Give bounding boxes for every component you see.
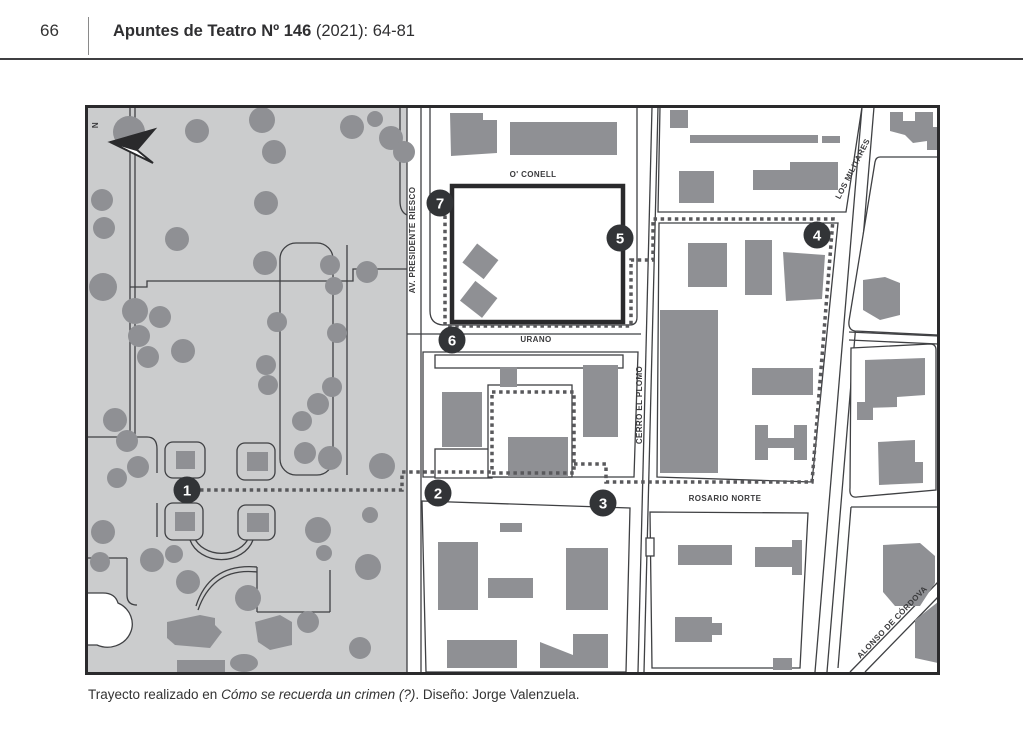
block-northeast-lower bbox=[657, 223, 838, 482]
building bbox=[690, 135, 818, 143]
marker-number: 4 bbox=[813, 228, 822, 245]
tree-icon bbox=[327, 323, 347, 343]
tree-icon bbox=[235, 585, 261, 611]
park-pond bbox=[230, 654, 258, 672]
tree-icon bbox=[89, 273, 117, 301]
marker-number: 2 bbox=[434, 486, 442, 503]
planter-core bbox=[247, 452, 268, 471]
tree-icon bbox=[307, 393, 329, 415]
park-area: N bbox=[87, 107, 415, 673]
tree-icon bbox=[93, 217, 115, 239]
block-northeast-upper bbox=[658, 107, 862, 212]
building bbox=[442, 392, 482, 447]
tree-icon bbox=[165, 227, 189, 251]
street-label-oconell: O' CONELL bbox=[510, 170, 557, 179]
route-marker-1: 1 bbox=[174, 477, 201, 504]
street-label-cerro-el-plomo: CERRO EL PLOMO bbox=[635, 366, 644, 444]
building bbox=[438, 542, 478, 610]
street-label-presidente-riesco: AV. PRESIDENTE RIESCO bbox=[408, 187, 417, 294]
tree-icon bbox=[185, 119, 209, 143]
tree-icon bbox=[297, 611, 319, 633]
tree-icon bbox=[165, 545, 183, 563]
tree-icon bbox=[91, 189, 113, 211]
building bbox=[679, 171, 714, 203]
tree-icon bbox=[305, 517, 331, 543]
building bbox=[678, 545, 732, 565]
building bbox=[660, 310, 718, 473]
street-label-urano: URANO bbox=[520, 335, 551, 344]
tree-icon bbox=[294, 442, 316, 464]
building bbox=[500, 367, 517, 387]
tree-icon bbox=[325, 277, 343, 295]
planter-core bbox=[175, 512, 195, 531]
tree-icon bbox=[356, 261, 378, 283]
route-marker-5: 5 bbox=[607, 225, 634, 252]
tree-icon bbox=[149, 306, 171, 328]
building bbox=[566, 548, 608, 610]
building bbox=[508, 437, 568, 477]
marker-number: 7 bbox=[436, 196, 444, 213]
building bbox=[745, 240, 772, 295]
route-marker-3: 3 bbox=[590, 490, 617, 517]
tree-icon bbox=[267, 312, 287, 332]
tree-icon bbox=[176, 570, 200, 594]
tree-icon bbox=[258, 375, 278, 395]
building bbox=[792, 540, 802, 575]
building bbox=[670, 110, 688, 128]
park-building bbox=[177, 660, 225, 672]
marker-number: 1 bbox=[183, 483, 191, 500]
street-label-rosario-norte: ROSARIO NORTE bbox=[689, 494, 762, 503]
tree-icon bbox=[316, 545, 332, 561]
tree-icon bbox=[256, 355, 276, 375]
block-south-east bbox=[646, 512, 808, 670]
route-marker-7: 7 bbox=[427, 190, 454, 217]
route-map: N bbox=[85, 105, 940, 675]
map-figure: N bbox=[85, 105, 940, 675]
tree-icon bbox=[171, 339, 195, 363]
building bbox=[488, 578, 533, 598]
building bbox=[783, 252, 825, 301]
route-marker-2: 2 bbox=[425, 480, 452, 507]
tree-icon bbox=[127, 456, 149, 478]
page-number: 66 bbox=[40, 21, 59, 41]
building bbox=[712, 623, 722, 635]
building bbox=[822, 136, 840, 143]
tree-icon bbox=[253, 251, 277, 275]
route-marker-4: 4 bbox=[804, 222, 831, 249]
tree-icon bbox=[254, 191, 278, 215]
building bbox=[447, 640, 517, 668]
parcel-notch bbox=[646, 538, 654, 556]
tree-icon bbox=[367, 111, 383, 127]
tree-icon bbox=[249, 107, 275, 133]
route-marker-6: 6 bbox=[439, 327, 466, 354]
building bbox=[773, 658, 792, 670]
building bbox=[510, 122, 617, 155]
block-oconell bbox=[430, 107, 637, 325]
tree-icon bbox=[140, 548, 164, 572]
tree-icon bbox=[318, 446, 342, 470]
tree-icon bbox=[107, 468, 127, 488]
tree-icon bbox=[122, 298, 148, 324]
marker-number: 5 bbox=[616, 231, 624, 248]
building bbox=[752, 368, 813, 395]
journal-title: Apuntes de Teatro Nº 146 bbox=[113, 22, 311, 40]
building bbox=[583, 365, 618, 437]
header-rule bbox=[0, 58, 1023, 60]
caption-suffix: . Diseño: Jorge Valenzuela. bbox=[415, 687, 579, 702]
journal-issue-pages: (2021): 64-81 bbox=[311, 22, 415, 40]
caption-work-title: Cómo se recuerda un crimen (?) bbox=[221, 687, 415, 702]
journal-header: Apuntes de Teatro Nº 146 (2021): 64-81 bbox=[113, 22, 415, 41]
tree-icon bbox=[90, 552, 110, 572]
planter-core bbox=[247, 513, 269, 532]
tree-icon bbox=[369, 453, 395, 479]
tree-icon bbox=[349, 637, 371, 659]
marker-number: 6 bbox=[448, 333, 456, 350]
figure-caption: Trayecto realizado en Cómo se recuerda u… bbox=[88, 687, 580, 702]
tree-icon bbox=[322, 377, 342, 397]
block-urano-south bbox=[423, 352, 638, 478]
tree-icon bbox=[340, 115, 364, 139]
building bbox=[500, 523, 522, 532]
north-label: N bbox=[91, 122, 100, 128]
block-south-west bbox=[422, 501, 630, 672]
tree-icon bbox=[116, 430, 138, 452]
building bbox=[688, 243, 727, 287]
caption-prefix: Trayecto realizado en bbox=[88, 687, 221, 702]
building bbox=[857, 402, 873, 420]
tree-icon bbox=[292, 411, 312, 431]
tree-icon bbox=[103, 408, 127, 432]
tree-icon bbox=[320, 255, 340, 275]
tree-icon bbox=[128, 325, 150, 347]
tree-icon bbox=[262, 140, 286, 164]
planter-core bbox=[176, 451, 195, 469]
marker-number: 3 bbox=[599, 496, 607, 513]
header-divider bbox=[88, 17, 89, 55]
tree-icon bbox=[362, 507, 378, 523]
tree-icon bbox=[91, 520, 115, 544]
tree-icon bbox=[393, 141, 415, 163]
tree-icon bbox=[355, 554, 381, 580]
tree-icon bbox=[137, 346, 159, 368]
building bbox=[755, 547, 793, 567]
building bbox=[675, 617, 712, 642]
